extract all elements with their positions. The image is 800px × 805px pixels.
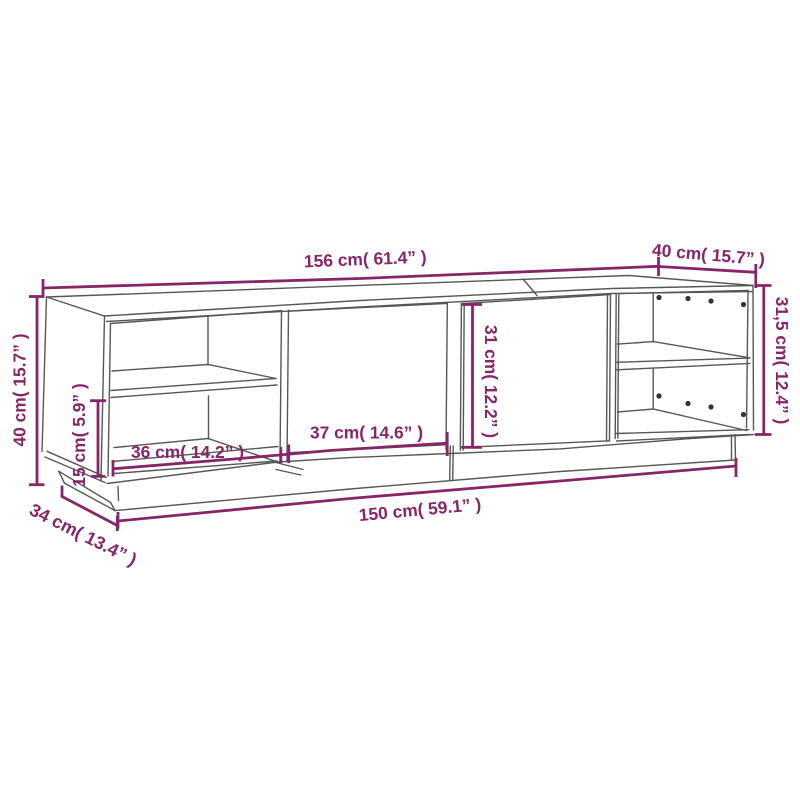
svg-text:31,5 cm( 12.4” ): 31,5 cm( 12.4” ) xyxy=(772,297,792,425)
svg-text:15 cm( 5.9” ): 15 cm( 5.9” ) xyxy=(69,383,89,486)
svg-text:31 cm( 12.2” ): 31 cm( 12.2” ) xyxy=(481,325,501,438)
svg-text:156 cm( 61.4” ): 156 cm( 61.4” ) xyxy=(304,247,427,272)
svg-text:36 cm( 14.2” ): 36 cm( 14.2” ) xyxy=(131,442,244,462)
svg-text:150 cm( 59.1” ): 150 cm( 59.1” ) xyxy=(358,494,482,525)
svg-text:37 cm( 14.6” ): 37 cm( 14.6” ) xyxy=(310,423,423,443)
svg-text:40 cm( 15.7” ): 40 cm( 15.7” ) xyxy=(9,333,29,446)
svg-text:40 cm( 15.7” ): 40 cm( 15.7” ) xyxy=(651,240,765,270)
